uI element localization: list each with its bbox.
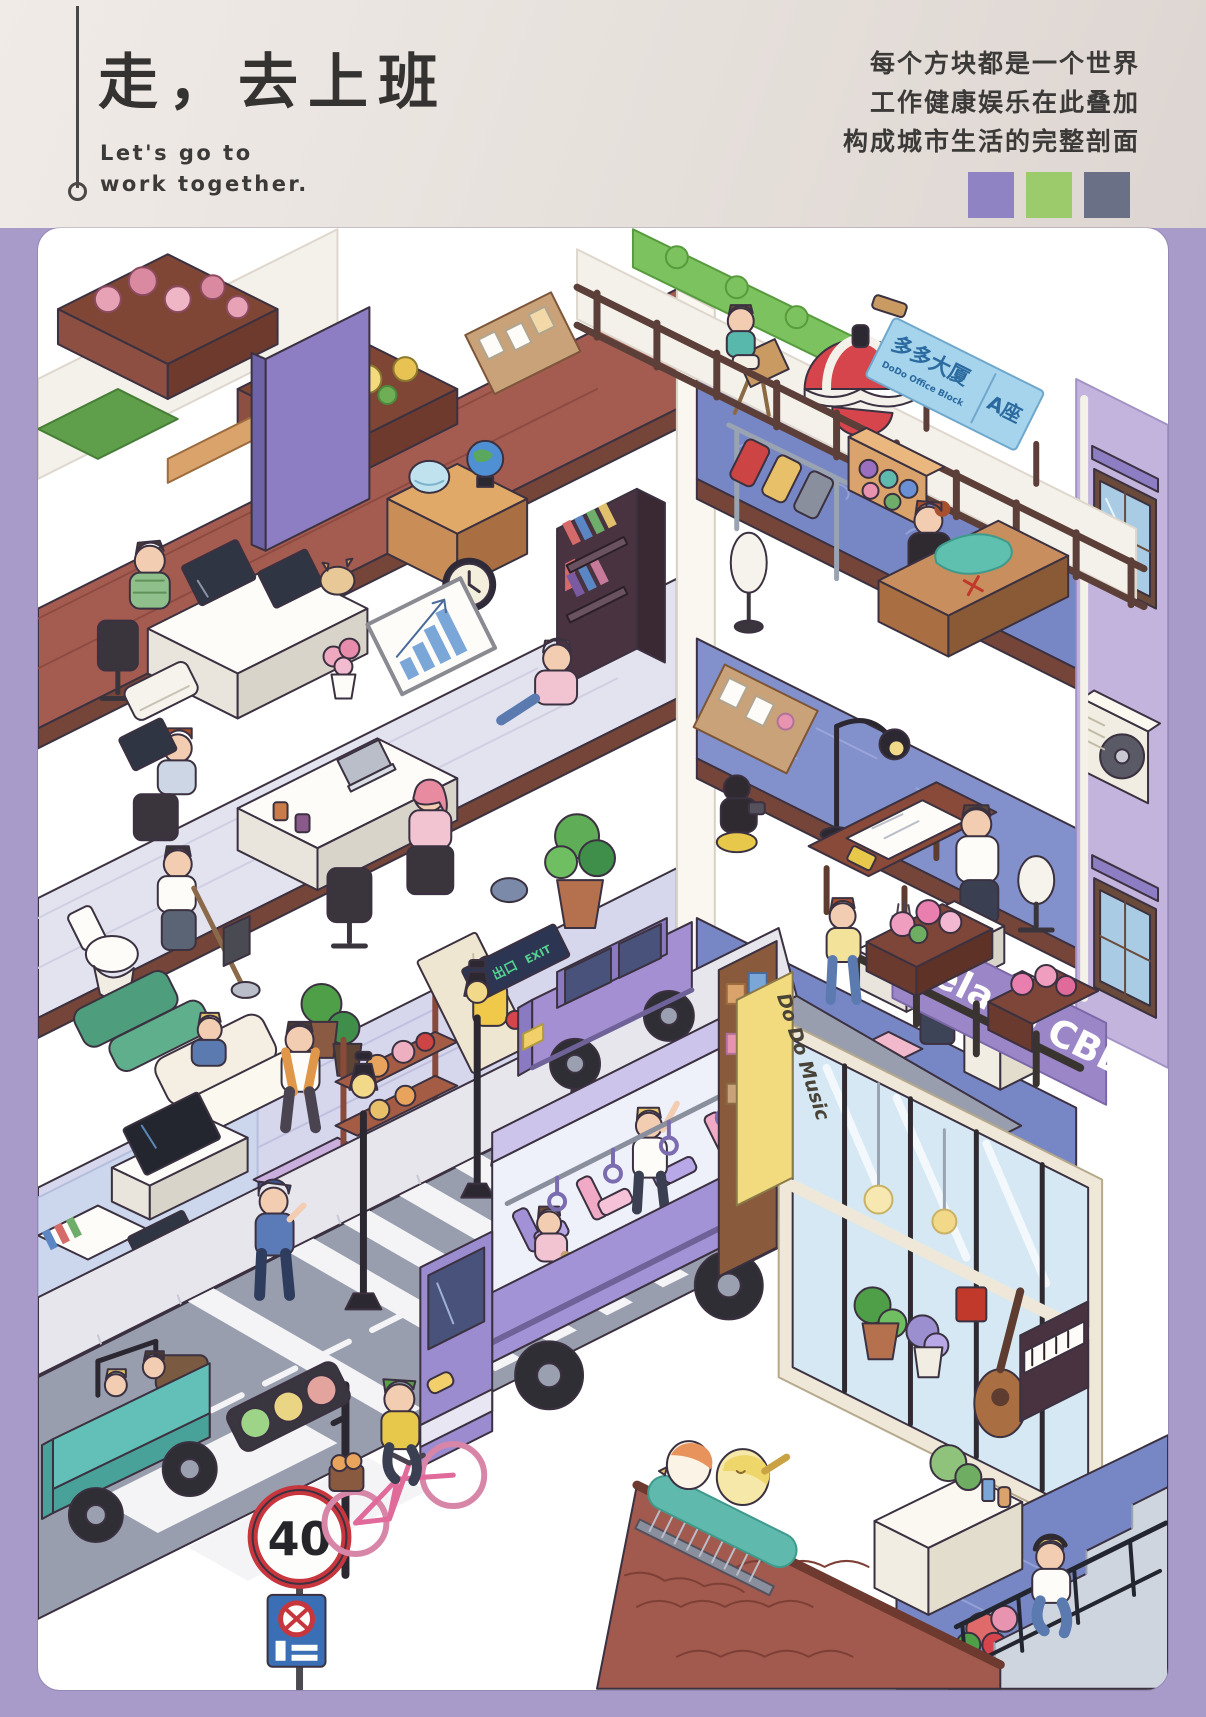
palette-swatch-slate: [1084, 172, 1130, 218]
telado-storefront: Telado CBD Do Do Music: [719, 916, 1137, 1539]
right-exterior-wall: [1076, 379, 1168, 1068]
palette-swatches: [968, 172, 1130, 218]
subtitle-line-2: work together.: [100, 169, 309, 200]
rooftop-garden: [38, 229, 457, 483]
office-worker-redhair: [118, 718, 195, 841]
poster-subtitle: Let's go to work together.: [100, 138, 309, 200]
poster-title: 走，去上班: [98, 34, 448, 121]
tagline-line-1: 每个方块都是一个世界: [843, 44, 1140, 83]
poster-page: 走，去上班 Let's go to work together. 每个方块都是一…: [0, 0, 1206, 1717]
palette-swatch-green: [1026, 172, 1072, 218]
title-rule: [76, 6, 79, 188]
waste-bin: [491, 878, 527, 902]
city-cutaway-illustration: 多多大厦 DoDo Office Block A座: [38, 228, 1168, 1690]
palette-swatch-purple: [968, 172, 1014, 218]
shiba-dog: [321, 567, 355, 595]
balcony-woman: [827, 898, 861, 1000]
poster-tagline: 每个方块都是一个世界 工作健康娱乐在此叠加 构成城市生活的完整剖面: [843, 44, 1140, 161]
office-worker-green: [130, 541, 170, 609]
title-rule-dot: [68, 182, 87, 201]
illustration-canvas: 多多大厦 DoDo Office Block A座: [38, 228, 1168, 1690]
speed-limit-sign: 40: [253, 1490, 347, 1689]
no-parking-sign: [268, 1595, 326, 1667]
meeting-chair: [327, 868, 371, 946]
bus-front: [420, 1232, 492, 1468]
subtitle-line-1: Let's go to: [100, 138, 309, 169]
tagline-line-3: 构成城市生活的完整剖面: [843, 122, 1140, 161]
poster-header: 走，去上班 Let's go to work together. 每个方块都是一…: [0, 0, 1206, 228]
worker-pink-hair: [407, 780, 453, 895]
mannequin: [731, 533, 767, 633]
tagline-line-2: 工作健康娱乐在此叠加: [843, 83, 1140, 122]
